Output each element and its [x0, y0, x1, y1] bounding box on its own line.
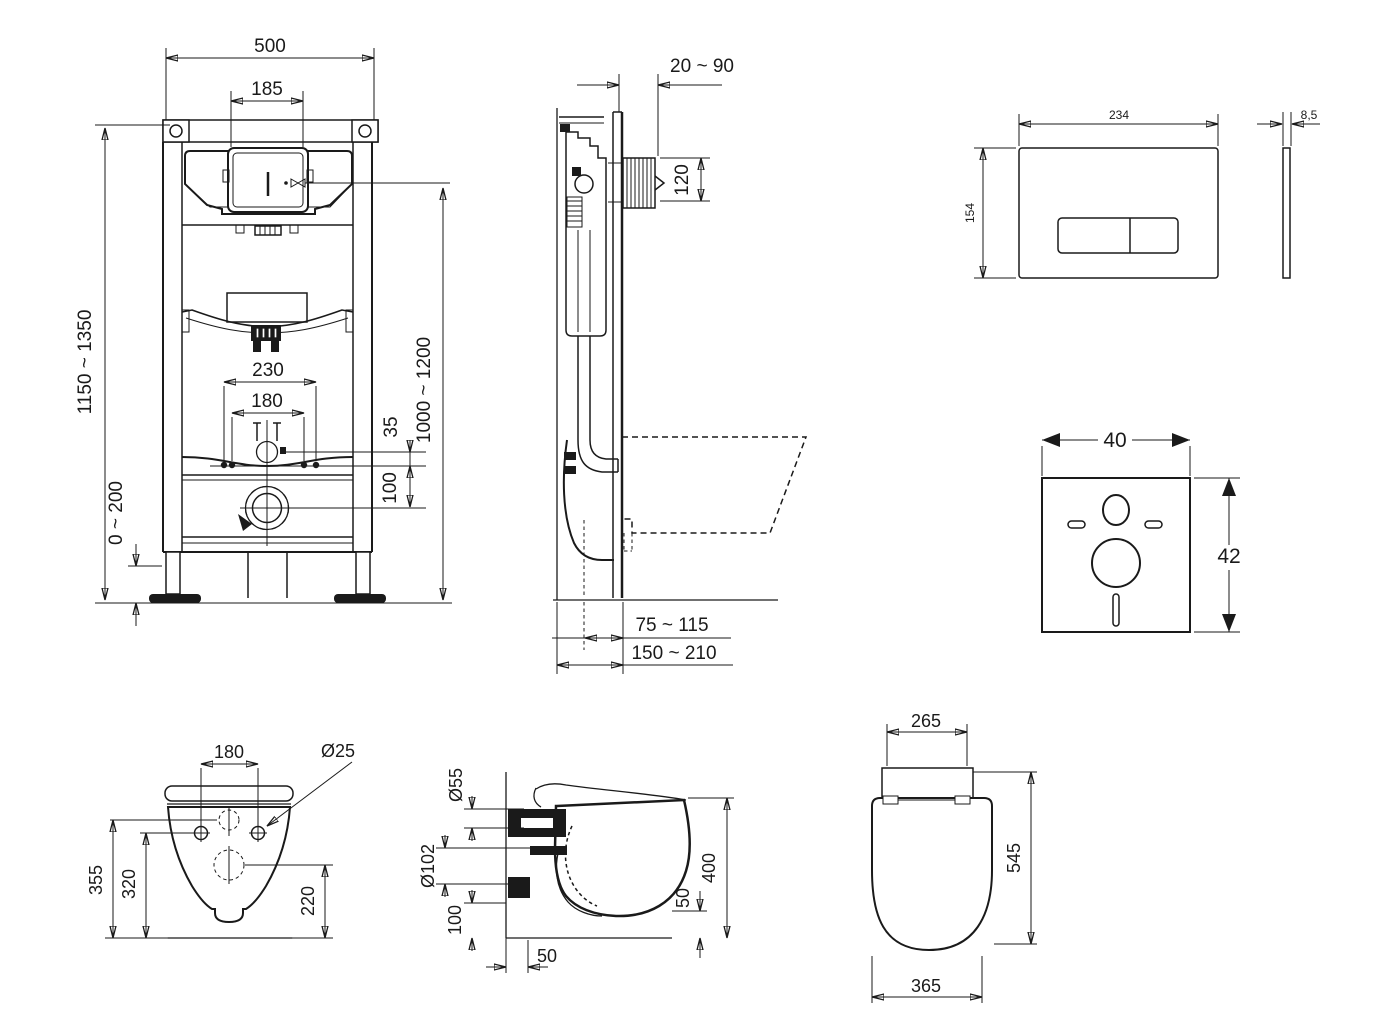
dim-bolt-span: 180: [214, 742, 244, 762]
base-plate-left: [149, 594, 201, 603]
dim-bolt-diameter: Ø25: [321, 741, 355, 761]
flush-plate-front-view: 234 154: [950, 90, 1250, 300]
bowl-rear-view: 180 Ø25 355 320 220: [75, 705, 395, 1015]
dim-height-total: 355: [86, 865, 106, 895]
dim-plate-thickness: 8,5: [1301, 108, 1318, 122]
dim-height-left: 1150 ~ 1350: [75, 310, 96, 415]
dim-drain-height: 100: [445, 905, 465, 935]
cistern-side: [566, 132, 623, 336]
cistern: [182, 148, 353, 235]
cistern-box: [882, 768, 973, 800]
foot-right: [356, 552, 370, 594]
dim-outlet-depth: 75 ~ 115: [635, 615, 708, 636]
dim-plate-width: 234: [1109, 108, 1129, 122]
bowl-outline-dashed: [622, 437, 806, 551]
dim-frame-width: 500: [254, 36, 286, 57]
dim-tank-width: 265: [911, 711, 941, 731]
dim-pad-height: 42: [1217, 545, 1240, 568]
water-inlet: [253, 423, 286, 463]
flush-bend-block: [623, 158, 664, 208]
dim-foot-adjust: 0 ~ 200: [106, 481, 127, 545]
dim-wall-distance: 20 ~ 90: [670, 56, 734, 77]
bowl-side-body: [506, 772, 690, 973]
dim-height-bolts: 320: [119, 869, 139, 899]
dim-bolt-span: 180: [251, 391, 283, 412]
plate-body: [1019, 148, 1218, 278]
dim-height-drain: 220: [298, 886, 318, 916]
dim-inlet-offset: 35: [381, 416, 402, 437]
flush-plate-side-view: 8,5: [1250, 90, 1370, 300]
dim-height: 400: [699, 853, 719, 883]
base-plate-right: [334, 594, 386, 603]
dim-cutout-width: 185: [251, 79, 283, 100]
dim-flush-bend: 120: [672, 164, 693, 196]
technical-drawing-sheet: 500 185 1150 ~ 1350 1000 ~ 1200 230 180: [0, 0, 1400, 1034]
seat-outline: [872, 798, 992, 950]
seat-profile: [536, 784, 686, 800]
seat-top-view: 265 545 365: [835, 705, 1105, 1015]
dim-depth: 545: [1004, 843, 1024, 873]
dimensions: 8,5: [1257, 108, 1320, 146]
frame-side-view: 20 ~ 90 120 75 ~ 115 150 ~ 210: [520, 40, 850, 690]
dim-drain-offset: 100: [380, 472, 401, 504]
pipes-side: [564, 336, 618, 598]
seat-top-body: [872, 768, 992, 950]
dim-pad-width: 40: [1103, 429, 1126, 452]
frame-front-view: 500 185 1150 ~ 1350 1000 ~ 1200 230 180: [60, 20, 460, 700]
dim-inlet-diameter: Ø55: [446, 768, 466, 802]
dimensions-left: Ø55 Ø102 100: [418, 768, 548, 951]
dim-pipe-span: 230: [252, 360, 284, 381]
dim-wall-offset: 50: [537, 946, 557, 966]
dim-width: 365: [911, 976, 941, 996]
pad-body: [1042, 478, 1190, 632]
dim-bottom-clearance: 50: [673, 888, 693, 908]
dim-height-right: 1000 ~ 1200: [414, 337, 435, 443]
dim-frame-depth: 150 ~ 210: [631, 643, 716, 664]
sound-insulation-pad-view: 40 42: [1010, 410, 1280, 660]
bowl-side-view: Ø55 Ø102 100: [415, 740, 745, 990]
plate-profile: [1283, 148, 1290, 278]
dim-plate-height: 154: [963, 203, 977, 223]
foot-left: [166, 552, 180, 594]
drain-outlet: [238, 420, 289, 546]
bowl-support: [182, 293, 353, 352]
bowl-profile: [555, 800, 690, 916]
dim-drain-diameter: Ø102: [418, 844, 438, 888]
